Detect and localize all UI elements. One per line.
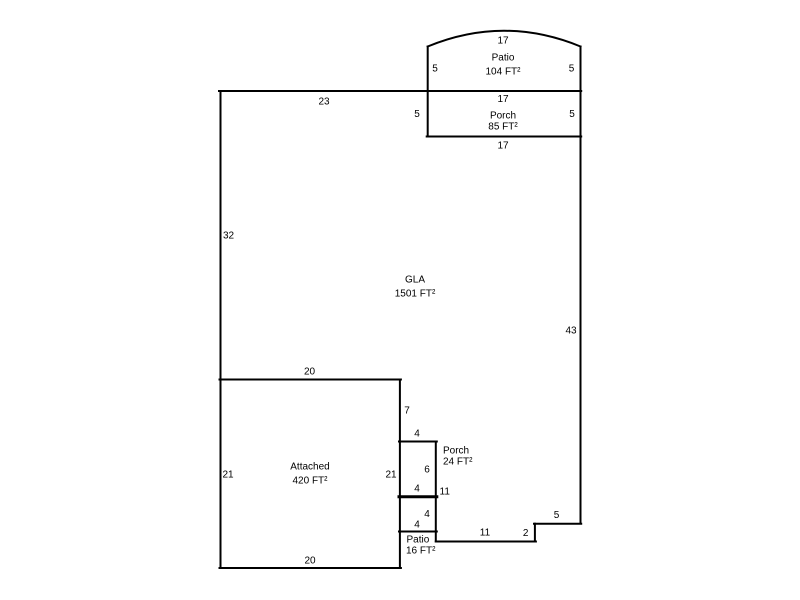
svg-text:1501 FT²: 1501 FT² <box>395 289 436 300</box>
svg-text:Attached: Attached <box>290 462 329 473</box>
svg-text:4: 4 <box>424 509 430 520</box>
svg-text:21: 21 <box>385 470 397 481</box>
svg-text:43: 43 <box>565 326 577 337</box>
svg-text:6: 6 <box>424 465 430 476</box>
svg-text:11: 11 <box>480 528 491 539</box>
svg-text:17: 17 <box>497 141 509 152</box>
svg-text:Porch: Porch <box>490 111 516 122</box>
svg-text:5: 5 <box>554 510 560 521</box>
svg-text:Patio: Patio <box>407 535 430 546</box>
svg-text:23: 23 <box>318 97 330 108</box>
svg-text:5: 5 <box>569 64 575 75</box>
svg-text:32: 32 <box>223 231 235 242</box>
svg-text:11: 11 <box>440 487 451 498</box>
svg-text:4: 4 <box>414 429 420 440</box>
svg-text:2: 2 <box>523 528 529 539</box>
svg-text:104 FT²: 104 FT² <box>485 67 521 78</box>
svg-text:17: 17 <box>497 94 509 105</box>
svg-text:20: 20 <box>304 367 316 378</box>
svg-text:4: 4 <box>414 484 420 495</box>
svg-text:24 FT²: 24 FT² <box>443 457 473 468</box>
svg-text:GLA: GLA <box>405 275 425 286</box>
svg-text:5: 5 <box>414 109 420 120</box>
svg-text:17: 17 <box>497 36 509 47</box>
svg-text:Porch: Porch <box>443 446 469 457</box>
svg-text:5: 5 <box>432 64 438 75</box>
svg-text:Patio: Patio <box>492 53 515 64</box>
svg-text:420 FT²: 420 FT² <box>292 476 328 487</box>
svg-text:16 FT²: 16 FT² <box>406 546 436 557</box>
svg-text:5: 5 <box>569 109 575 120</box>
svg-text:20: 20 <box>304 556 316 567</box>
svg-text:85 FT²: 85 FT² <box>488 122 518 133</box>
svg-text:7: 7 <box>404 406 410 417</box>
svg-text:4: 4 <box>414 520 420 531</box>
svg-text:21: 21 <box>222 470 234 481</box>
